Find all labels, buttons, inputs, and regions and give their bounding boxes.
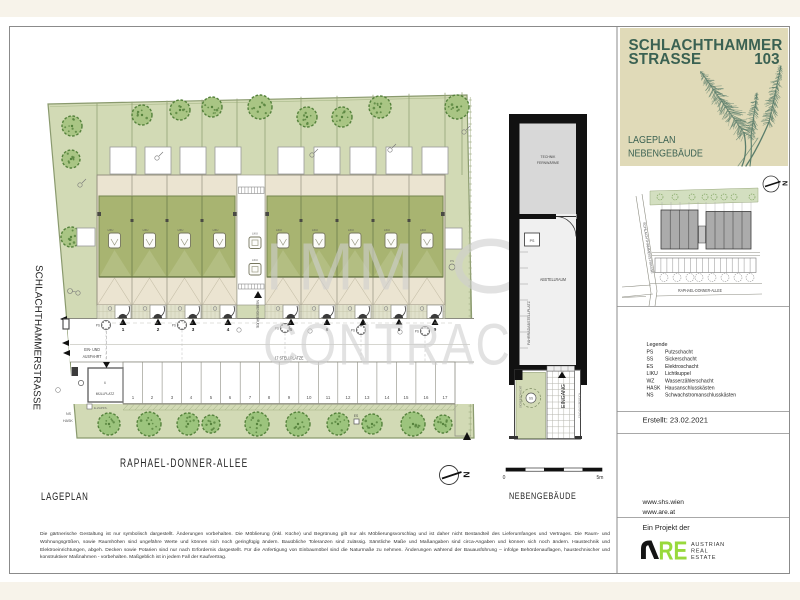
svg-text:2: 2 bbox=[157, 327, 160, 332]
svg-text:LAGEPLAN: LAGEPLAN bbox=[628, 135, 676, 147]
svg-text:5m: 5m bbox=[597, 475, 604, 481]
svg-text:SS: SS bbox=[529, 397, 533, 401]
svg-text:N: N bbox=[462, 472, 472, 478]
svg-text:LAGEPLAN: LAGEPLAN bbox=[41, 491, 89, 504]
svg-text:RE: RE bbox=[659, 536, 688, 565]
svg-text:ES: ES bbox=[647, 364, 654, 370]
svg-text:LIKU: LIKU bbox=[252, 258, 258, 262]
svg-text:PS: PS bbox=[172, 324, 176, 328]
svg-text:CONTRACT: CONTRACT bbox=[263, 313, 543, 378]
svg-text:LIKU: LIKU bbox=[647, 371, 659, 377]
svg-text:PS: PS bbox=[450, 259, 454, 263]
svg-text:13: 13 bbox=[365, 395, 370, 400]
svg-text:FAHRRADABSTELLPLATZ: FAHRRADABSTELLPLATZ bbox=[527, 300, 531, 345]
svg-text:LIKU: LIKU bbox=[213, 228, 219, 232]
svg-text:WZ: WZ bbox=[647, 378, 655, 384]
svg-text:HASK: HASK bbox=[647, 386, 661, 392]
svg-text:PS: PS bbox=[96, 324, 100, 328]
svg-text:NEBENGEBÄUDE: NEBENGEBÄUDE bbox=[628, 148, 703, 160]
svg-text:M: M bbox=[358, 230, 414, 305]
svg-text:LIKU: LIKU bbox=[420, 228, 426, 232]
svg-text:AUSTRIAN: AUSTRIAN bbox=[691, 542, 725, 548]
svg-text:11: 11 bbox=[326, 395, 331, 400]
svg-text:N: N bbox=[781, 181, 788, 186]
svg-text:Sickerschacht: Sickerschacht bbox=[665, 357, 697, 363]
svg-text:LIKU: LIKU bbox=[108, 228, 114, 232]
svg-text:16: 16 bbox=[424, 395, 429, 400]
svg-text:www.are.at: www.are.at bbox=[642, 509, 676, 516]
svg-text:Elektroschacht: Elektroschacht bbox=[665, 364, 699, 370]
svg-text:6: 6 bbox=[104, 381, 106, 385]
svg-text:14: 14 bbox=[385, 395, 390, 400]
svg-text:10: 10 bbox=[307, 395, 312, 400]
svg-text:AUSFAHRT: AUSFAHRT bbox=[83, 354, 102, 359]
svg-text:Hausanschlusskästen: Hausanschlusskästen bbox=[665, 386, 715, 392]
svg-text:M: M bbox=[298, 230, 354, 305]
svg-text:Lichtkuppel: Lichtkuppel bbox=[665, 371, 691, 377]
svg-text:EIN- UND: EIN- UND bbox=[84, 347, 100, 352]
svg-text:LIKU: LIKU bbox=[252, 231, 258, 235]
svg-text:ABSTELLRAUM: ABSTELLRAUM bbox=[540, 277, 566, 282]
svg-text:1: 1 bbox=[122, 327, 125, 332]
svg-text:NS: NS bbox=[647, 393, 655, 399]
svg-text:SS: SS bbox=[647, 357, 654, 363]
svg-text:SICKERSCHACHT: SICKERSCHACHT bbox=[519, 385, 523, 408]
svg-text:I: I bbox=[265, 230, 284, 305]
svg-text:15: 15 bbox=[404, 395, 409, 400]
svg-text:0: 0 bbox=[503, 475, 506, 481]
svg-text:REAL: REAL bbox=[691, 549, 708, 555]
svg-text:Wasserzählerschacht: Wasserzählerschacht bbox=[665, 378, 714, 384]
svg-text:TECHNIK: TECHNIK bbox=[541, 155, 556, 159]
svg-text:SCHLACHTHAMMERSTRASSE: SCHLACHTHAMMERSTRASSE bbox=[30, 265, 44, 411]
svg-text:STRASSE: STRASSE bbox=[629, 51, 702, 68]
svg-text:4: 4 bbox=[227, 327, 230, 332]
svg-text:NEBENGEBÄUDE: NEBENGEBÄUDE bbox=[256, 300, 260, 329]
svg-text:ESTATE: ESTATE bbox=[691, 555, 716, 561]
svg-text:HASK: HASK bbox=[63, 419, 73, 423]
svg-text:Legende: Legende bbox=[647, 342, 668, 348]
svg-text:RAPHAEL-DONNER-ALLEE: RAPHAEL-DONNER-ALLEE bbox=[120, 458, 248, 471]
svg-text:EINGANGSBEREICH: EINGANGSBEREICH bbox=[578, 393, 582, 418]
svg-text:ES: ES bbox=[354, 414, 358, 418]
svg-text:E-ZAPFS.: E-ZAPFS. bbox=[94, 406, 108, 410]
svg-text:EINGANG: EINGANG bbox=[561, 384, 567, 408]
svg-text:NS: NS bbox=[66, 412, 72, 416]
svg-text:12: 12 bbox=[346, 395, 351, 400]
svg-text:Erstellt: 23.02.2021: Erstellt: 23.02.2021 bbox=[643, 416, 708, 425]
svg-text:3: 3 bbox=[192, 327, 195, 332]
svg-text:17: 17 bbox=[443, 395, 448, 400]
svg-text:Schwachstromanschlusskästen: Schwachstromanschlusskästen bbox=[665, 393, 736, 399]
svg-text:LIKU: LIKU bbox=[178, 228, 184, 232]
svg-text:FERNWÄRME: FERNWÄRME bbox=[537, 161, 560, 165]
svg-text:PS: PS bbox=[647, 350, 654, 356]
svg-text:MÜLLPLATZ: MÜLLPLATZ bbox=[96, 392, 115, 396]
svg-text:103: 103 bbox=[754, 51, 779, 68]
svg-text:RAPHAEL-DONNER-ALLEE: RAPHAEL-DONNER-ALLEE bbox=[678, 288, 722, 294]
svg-text:www.shs.wien: www.shs.wien bbox=[642, 499, 685, 506]
svg-text:Ein Projekt der: Ein Projekt der bbox=[643, 523, 691, 532]
svg-text:Putzschacht: Putzschacht bbox=[665, 350, 693, 356]
svg-text:PS: PS bbox=[530, 239, 535, 243]
svg-text:NEBENGEBÄUDE: NEBENGEBÄUDE bbox=[509, 490, 576, 501]
svg-text:LIKU: LIKU bbox=[143, 228, 149, 232]
